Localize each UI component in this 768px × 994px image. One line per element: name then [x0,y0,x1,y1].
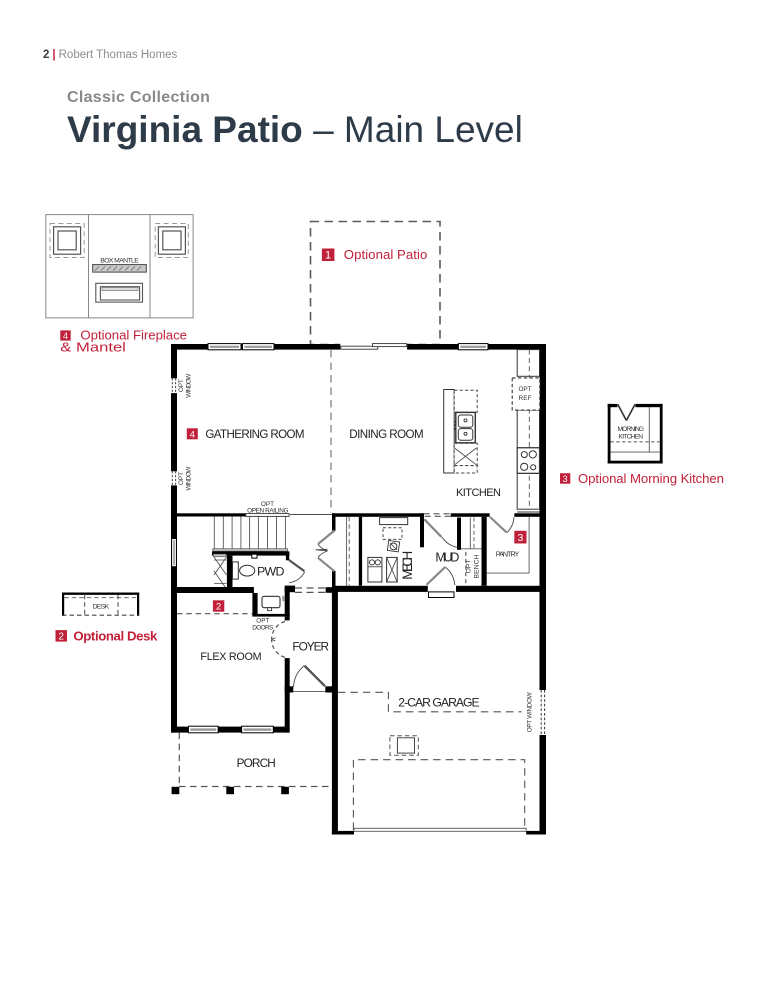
svg-text:FOYER: FOYER [292,640,329,654]
svg-text:OPT WINDOW: OPT WINDOW [527,692,534,732]
svg-text:2-CAR GARAGE: 2-CAR GARAGE [398,696,479,710]
svg-text:DINING ROOM: DINING ROOM [349,428,423,441]
svg-text:BENCH: BENCH [474,554,481,578]
svg-text:WINDOW: WINDOW [186,466,193,490]
svg-text:REF: REF [519,395,532,402]
svg-text:Optional Morning Kitchen: Optional Morning Kitchen [578,471,724,486]
svg-text:PANTRY: PANTRY [496,549,520,558]
svg-text:Optional Desk: Optional Desk [73,629,158,644]
svg-text:4: 4 [190,429,195,440]
svg-text:PWD: PWD [257,564,285,578]
svg-text:2: 2 [58,632,64,643]
svg-text:OPT: OPT [178,472,185,485]
svg-text:OPT: OPT [178,379,185,392]
svg-text:DOORS: DOORS [252,625,273,632]
svg-text:BOX MANTLE: BOX MANTLE [100,257,139,264]
svg-text:KITCHEN: KITCHEN [456,487,501,499]
svg-text:WINDOW: WINDOW [186,374,193,398]
svg-text:3: 3 [563,474,568,484]
svg-text:OPT: OPT [465,560,472,574]
svg-text:OPT: OPT [519,386,532,393]
svg-text:OPEN RAILING: OPEN RAILING [247,508,288,515]
svg-text:MUD: MUD [435,551,459,565]
svg-text:& Mantel: & Mantel [60,340,126,355]
svg-text:PORCH: PORCH [237,756,276,770]
svg-text:FLEX ROOM: FLEX ROOM [200,651,261,663]
svg-text:MECH: MECH [400,551,415,580]
svg-text:MORNING: MORNING [618,426,645,433]
svg-text:3: 3 [517,532,523,544]
svg-text:2: 2 [216,602,221,613]
svg-text:KITCHEN: KITCHEN [619,434,644,441]
svg-text:DESK: DESK [93,603,110,610]
svg-text:OPT: OPT [256,618,269,625]
svg-text:GATHERING ROOM: GATHERING ROOM [205,428,304,441]
svg-text:1: 1 [325,250,331,262]
svg-text:Optional Patio: Optional Patio [344,247,428,262]
